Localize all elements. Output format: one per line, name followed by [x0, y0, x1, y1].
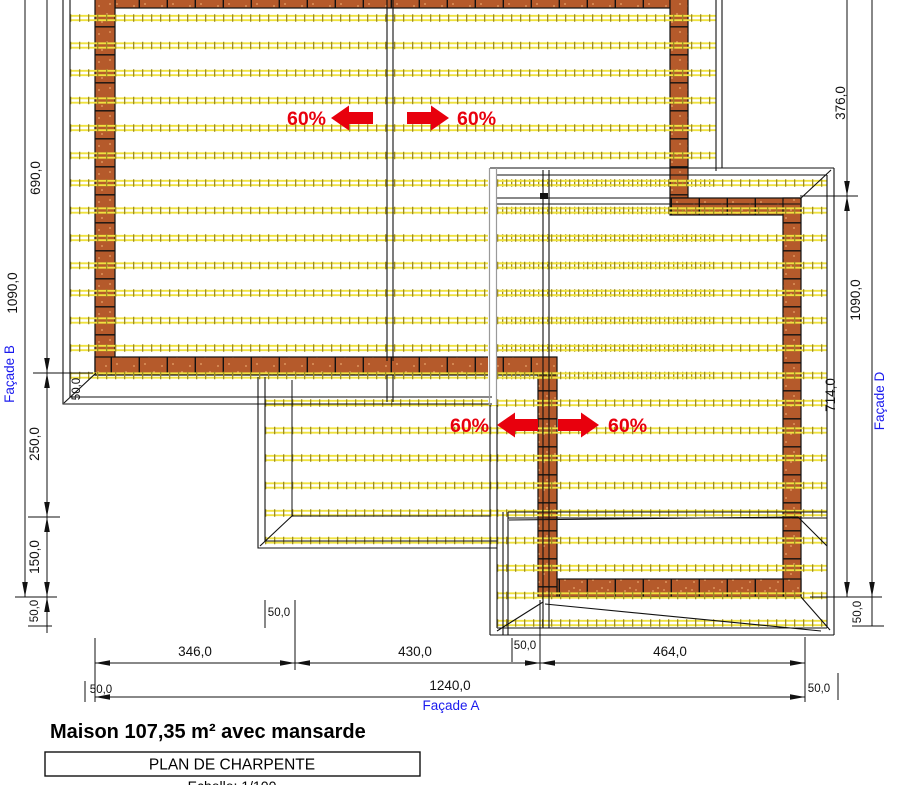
dim-50-wing-label: 50,0: [268, 607, 290, 619]
title-block: Maison 107,35 m² avec mansarde PLAN DE C…: [45, 721, 420, 785]
dim-1090-left-label: 1090,0: [5, 272, 20, 313]
dim-50-bottom-right-label: 50,0: [808, 683, 830, 695]
dimension-arrowheads: [22, 181, 875, 700]
slope-label-2: 60%: [457, 108, 496, 130]
dim-690-label: 690,0: [28, 161, 43, 195]
slope-arrow-left-1: [331, 106, 373, 131]
dim-150-label: 150,0: [27, 540, 42, 574]
dim-464-label: 464,0: [653, 644, 687, 659]
plan-label: PLAN DE CHARPENTE: [149, 757, 315, 774]
charpente-plan-drawing: 60% 60% 60% 60% 690,0 1090,0 Façade B 25…: [0, 0, 908, 785]
wing-roof-outline: [258, 377, 497, 548]
facade-b-label: Façade B: [2, 345, 17, 403]
dim-430-label: 430,0: [398, 644, 432, 659]
facade-d-label: Façade D: [872, 371, 887, 430]
roof-battens: [70, 16, 827, 625]
slope-label-4: 60%: [608, 415, 647, 437]
post-marker: [540, 193, 548, 199]
dim-714-label: 714,0: [823, 378, 838, 412]
wall-ext-left: [538, 375, 557, 597]
dim-50-bottom-left-label: 50,0: [90, 684, 112, 696]
facade-a-label: Façade A: [422, 698, 479, 713]
dim-1240-label: 1240,0: [429, 678, 470, 693]
dim-50-extension-label: 50,0: [514, 640, 536, 652]
dim-376-label: 376,0: [833, 86, 848, 120]
dim-250-label: 250,0: [27, 427, 42, 461]
dim-50-left-label: 50,0: [29, 600, 41, 622]
masonry-walls: [95, 0, 801, 597]
wall-ext-bottom: [557, 579, 801, 597]
dim-50-corner-label: 50,0: [71, 378, 83, 400]
slope-label-1: 60%: [287, 108, 326, 130]
dim-50-right-label: 50,0: [852, 601, 864, 623]
drawing-title: Maison 107,35 m² avec mansarde: [50, 721, 366, 743]
main-ridge: [387, 0, 393, 402]
slope-label-3: 60%: [450, 415, 489, 437]
dim-1090-right-label: 1090,0: [848, 279, 863, 320]
wall-main-bottom: [95, 357, 557, 375]
scale-label: Echelle: 1/100: [188, 778, 277, 785]
slope-arrow-left-2: [497, 413, 538, 438]
dim-346-label: 346,0: [178, 644, 212, 659]
